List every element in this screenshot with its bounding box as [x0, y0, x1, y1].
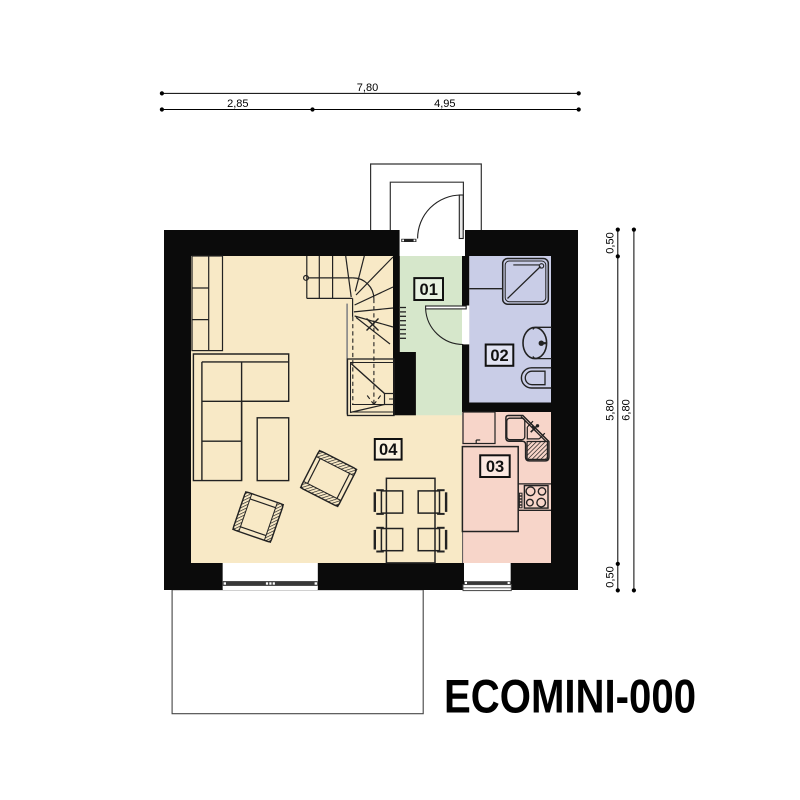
- svg-text:4,95: 4,95: [434, 98, 455, 110]
- svg-text:0,50: 0,50: [605, 566, 617, 587]
- svg-text:03: 03: [486, 458, 504, 476]
- svg-text:01: 01: [420, 281, 438, 299]
- svg-text:6,80: 6,80: [621, 399, 633, 420]
- svg-text:ECOMINI-000: ECOMINI-000: [444, 670, 696, 723]
- svg-text:2,85: 2,85: [227, 98, 248, 110]
- svg-text:5,80: 5,80: [605, 399, 617, 420]
- svg-text:0,50: 0,50: [605, 232, 617, 253]
- svg-text:02: 02: [490, 347, 508, 365]
- svg-text:04: 04: [379, 441, 398, 459]
- svg-text:7,80: 7,80: [357, 82, 378, 94]
